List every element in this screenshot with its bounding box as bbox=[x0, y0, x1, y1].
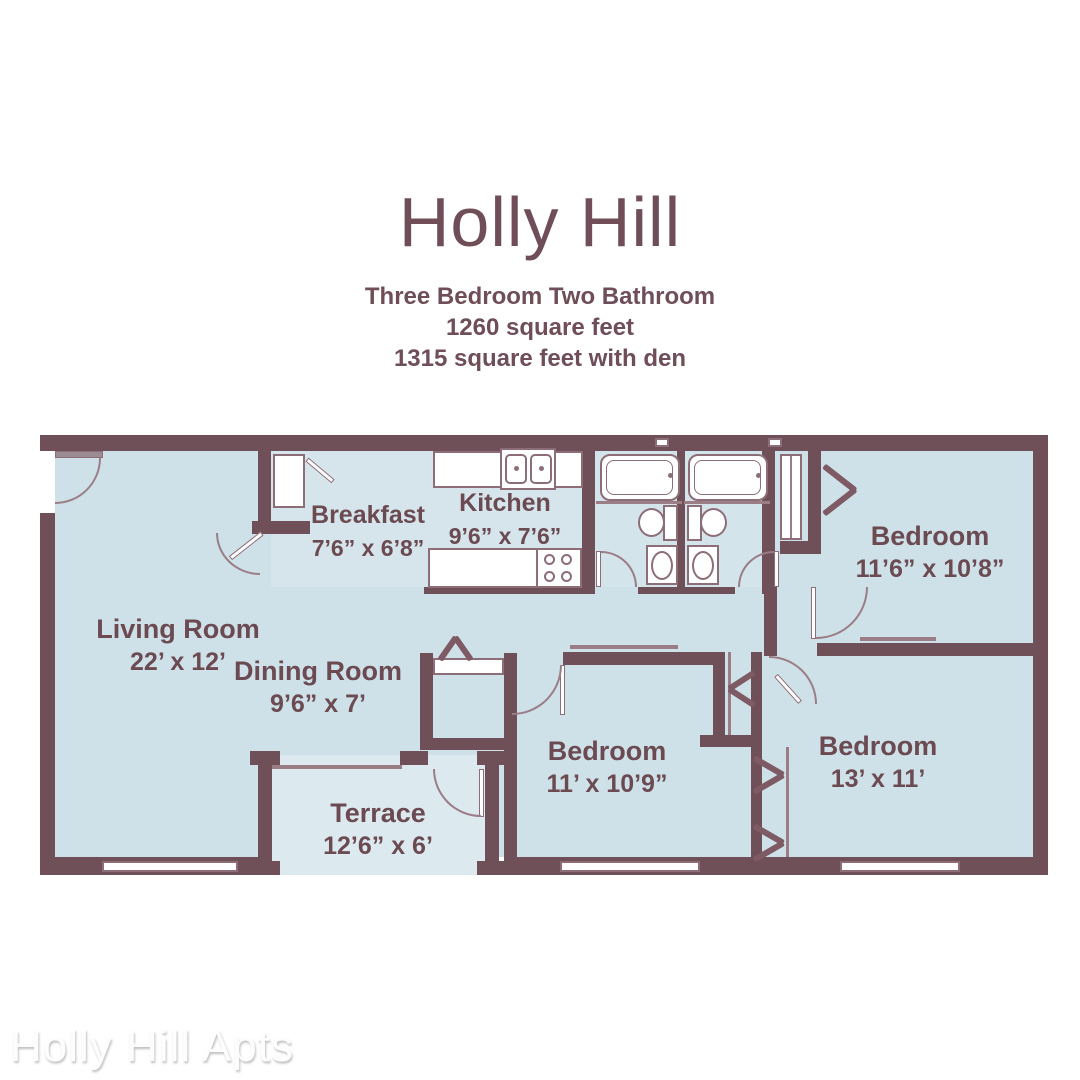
room-name: Bedroom bbox=[788, 730, 968, 763]
bathtub-1-inner bbox=[606, 460, 673, 495]
room-dims: 13’ x 11’ bbox=[788, 763, 968, 795]
wall-breakfast-closet bbox=[258, 451, 271, 527]
bedroom2-door-leaf-line bbox=[570, 645, 678, 649]
room-name: Bedroom bbox=[840, 520, 1020, 553]
wall-closet-col-east bbox=[751, 652, 762, 747]
wall-bath-bottom bbox=[638, 587, 735, 594]
stove bbox=[536, 548, 582, 588]
room-dims: 12’6” x 6’ bbox=[288, 830, 468, 862]
plan-title: Holly Hill bbox=[0, 182, 1080, 262]
wall-terrace-mid-cap bbox=[400, 751, 428, 765]
linen-shelf-line bbox=[790, 456, 792, 538]
wall-dining-closet-left bbox=[420, 653, 433, 750]
sink-basin-1 bbox=[638, 508, 665, 537]
wall-linen-cap bbox=[780, 541, 821, 554]
room-label-terrace: Terrace 12’6” x 6’ bbox=[288, 797, 468, 862]
sink-drain-left bbox=[514, 466, 519, 471]
bathtub-2-inner bbox=[694, 460, 761, 495]
room-name: Breakfast bbox=[288, 499, 448, 532]
terrace-sliding-door bbox=[272, 765, 402, 769]
wall-terrace-cap-tr bbox=[477, 751, 507, 765]
room-dims: 9’6” x 7’ bbox=[228, 688, 408, 720]
room-dims: 11’ x 10’9” bbox=[517, 768, 697, 800]
wall-hall-east bbox=[764, 587, 777, 656]
room-name: Terrace bbox=[288, 797, 468, 830]
wall-right bbox=[1033, 435, 1048, 875]
bedroom1-door-leaf-line bbox=[860, 637, 936, 641]
wall-bedroom2-north bbox=[563, 652, 713, 665]
window-bedroom3 bbox=[840, 861, 960, 872]
room-dims: 7’6” x 6’8” bbox=[288, 532, 448, 564]
wall-terrace-right bbox=[485, 755, 499, 875]
sink-drain-right bbox=[539, 466, 544, 471]
wall-terrace-cap-bl bbox=[250, 861, 280, 875]
wall-terrace-cap-tl bbox=[250, 751, 280, 765]
wall-kitchen-bottom bbox=[424, 587, 582, 594]
stove-burner-1 bbox=[544, 554, 555, 565]
room-label-breakfast: Breakfast 7’6” x 6’8” bbox=[288, 499, 448, 564]
bathtub-2-edge bbox=[684, 501, 770, 504]
watermark-text: Holly Hill Apts bbox=[10, 1022, 294, 1072]
subtitle-line-1: Three Bedroom Two Bathroom bbox=[0, 281, 1080, 312]
wall-dining-closet-bottom bbox=[420, 738, 517, 750]
room-label-bedroom2: Bedroom 11’ x 10’9” bbox=[517, 735, 697, 800]
vent-bath2 bbox=[768, 438, 782, 447]
sink-basin-2 bbox=[700, 508, 727, 537]
room-name: Bedroom bbox=[517, 735, 697, 768]
bath2-door-leaf bbox=[774, 551, 779, 587]
wall-left-corner bbox=[40, 435, 55, 451]
wall-left bbox=[40, 513, 55, 857]
room-label-dining: Dining Room 9’6” x 7’ bbox=[228, 655, 408, 720]
toilet-2-bowl bbox=[692, 551, 714, 580]
vent-bath1 bbox=[655, 438, 669, 447]
room-name: Kitchen bbox=[425, 487, 585, 520]
floor-plan-page: Holly Hill Three Bedroom Two Bathroom 12… bbox=[0, 0, 1080, 1080]
room-label-kitchen: Kitchen 9’6” x 7’6” bbox=[425, 487, 585, 552]
wall-closet-col-west bbox=[713, 652, 725, 747]
room-name: Dining Room bbox=[228, 655, 408, 688]
room-dims: 11’6” x 10’8” bbox=[840, 553, 1020, 585]
wall-bedroom1-south bbox=[817, 643, 1033, 656]
room-label-bedroom3: Bedroom 13’ x 11’ bbox=[788, 730, 968, 795]
wall-terrace-left bbox=[258, 755, 272, 875]
bathtub-1-faucet bbox=[668, 473, 673, 478]
room-label-bedroom1: Bedroom 11’6” x 10’8” bbox=[840, 520, 1020, 585]
subtitle-line-3: 1315 square feet with den bbox=[0, 343, 1080, 374]
room-name: Living Room bbox=[78, 613, 278, 646]
wall-closet-divider bbox=[700, 735, 762, 747]
stove-burner-3 bbox=[544, 571, 555, 582]
vanity-1 bbox=[663, 505, 678, 541]
floor-plan: Living Room 22’ x 12’ Breakfast 7’6” x 6… bbox=[40, 435, 1048, 877]
toilet-1-bowl bbox=[651, 551, 673, 580]
window-bedroom2 bbox=[560, 861, 700, 872]
stove-burner-4 bbox=[561, 571, 572, 582]
stove-burner-2 bbox=[561, 554, 572, 565]
entry-door-leaf bbox=[55, 451, 103, 458]
wall-terrace-cap-br bbox=[477, 861, 507, 875]
room-dims: 9’6” x 7’6” bbox=[425, 520, 585, 552]
subtitle-line-2: 1260 square feet bbox=[0, 312, 1080, 343]
wall-bedroom1-west bbox=[808, 451, 821, 547]
window-living-room bbox=[102, 861, 238, 872]
bathtub-2-faucet bbox=[756, 473, 761, 478]
bathtub-1-edge bbox=[596, 501, 682, 504]
plan-subtitle: Three Bedroom Two Bathroom 1260 square f… bbox=[0, 281, 1080, 374]
